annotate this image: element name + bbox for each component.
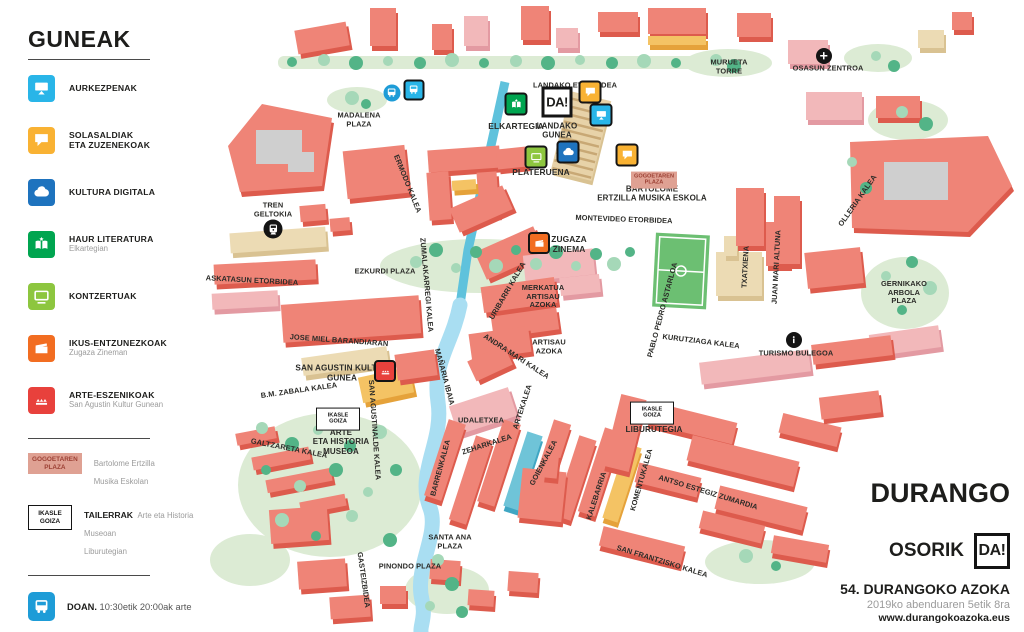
map-label: ARTISAU AZOKA <box>532 338 566 355</box>
legend-item-label: AURKEZPENAK <box>69 83 137 93</box>
ikus-entzunezkoak-icon <box>528 232 550 254</box>
legend-item-solasaldiak: SOLASALDIAK ETA ZUZENEKOAK <box>28 126 198 154</box>
map-label: UDALETXEA <box>458 417 504 426</box>
legend-item-arte-eszenikoak: ARTE-ESZENIKOAK San Agustin Kultur Gunea… <box>28 386 198 414</box>
legend-item-kontzertuak: KONTZERTUAK <box>28 282 198 310</box>
legend-items: AURKEZPENAK SOLASALDIAK ETA ZUZENEKOAK K… <box>28 74 198 414</box>
legend: GUNEAK AURKEZPENAK SOLASALDIAK ETA ZUZEN… <box>28 26 198 632</box>
legend-title: GUNEAK <box>28 26 198 53</box>
arte-eszenikoak-icon <box>374 360 396 382</box>
legend-item-label: HAUR LITERATURA <box>69 234 153 244</box>
da-logo-brand: DA! <box>974 533 1010 569</box>
free-label: DOAN. <box>67 602 97 612</box>
aurkezpenak-icon <box>590 104 613 127</box>
map-label: GERNIKAKO ARBOLA PLAZA <box>881 280 927 306</box>
badge: IKASLE GOIZA <box>28 505 72 530</box>
osorik-label: OSORIK <box>889 540 964 562</box>
solasaldiak-1-icon <box>579 81 602 104</box>
divider <box>28 59 150 60</box>
free-entry-row: DOAN. 10:30etik 20:00ak arte <box>28 592 198 621</box>
legend-badge-gogoetaren-plaza: GOGOETAREN PLAZA Bartolome Ertzilla Musi… <box>28 453 198 489</box>
tren-geltokia-icon <box>264 220 283 239</box>
ikus-entzunezkoak-icon <box>28 335 55 362</box>
doan-bus-icon <box>404 80 425 101</box>
map-label: MADALENA PLAZA <box>337 111 380 128</box>
event-url: www.durangokoazoka.eus <box>840 612 1010 624</box>
legend-badge-ikasle-goiza: IKASLE GOIZA TAILERRAK Arte eta Historia… <box>28 505 198 559</box>
arte-eszenikoak-icon <box>28 387 55 414</box>
haur-literatura-icon <box>28 231 55 258</box>
solasaldiak-2-icon <box>616 144 639 167</box>
map-label: LANDAKO GUNEA <box>537 122 578 141</box>
map-label: ARTE ETA HISTORIA MUSEOA <box>313 428 370 456</box>
map-label: EZKURDI PLAZA <box>355 268 416 277</box>
map-badge-ikasle-goiza-liburutegia: IKASLE GOIZA <box>630 402 674 425</box>
kontzertuak-icon <box>525 146 548 169</box>
legend-item-label: IKUS-ENTZUNEZKOAK <box>69 338 167 348</box>
legend-item-sublabel: San Agustin Kultur Gunean <box>69 400 163 409</box>
bus-stop-icon <box>384 85 401 102</box>
legend-item-haur-literatura: HAUR LITERATURA Elkartegian <box>28 230 198 258</box>
legend-badges: GOGOETAREN PLAZA Bartolome Ertzilla Musi… <box>28 453 198 559</box>
legend-item-label: ARTE-ESZENIKOAK <box>69 390 163 400</box>
map-label: ELKARTEGIA <box>488 122 543 132</box>
legend-item-label: SOLASALDIAK ETA ZUZENEKOAK <box>69 130 150 151</box>
da-logo: DA! <box>542 87 573 118</box>
haur-literatura-icon <box>505 93 528 116</box>
divider <box>28 575 150 576</box>
map-label: TURISMO BULEGOA <box>759 350 834 359</box>
map-label: PLATERUENA <box>512 168 570 178</box>
bus-icon <box>28 592 55 621</box>
map-label: MURUETA TORRE <box>710 58 747 75</box>
map-label: LIBURUTEGIA <box>625 425 682 435</box>
turismo-bulegoa-icon <box>786 332 802 348</box>
map-label: OSASUN ZENTROA <box>793 65 864 74</box>
aurkezpenak-icon <box>28 75 55 102</box>
legend-item-sublabel: Elkartegian <box>69 244 153 253</box>
map-badge-gogoetaren-plaza: GOGOETAREN PLAZA <box>631 172 677 189</box>
city-title: DURANGO <box>840 478 1010 509</box>
event-title: 54. DURANGOKO AZOKA <box>840 581 1010 597</box>
map-badge-ikasle-goiza-museoa: IKASLE GOIZA <box>316 408 360 431</box>
legend-item-aurkezpenak: AURKEZPENAK <box>28 74 198 102</box>
event-date: 2019ko abenduaren 5etik 8ra <box>840 599 1010 611</box>
osasun-zentroa-icon <box>816 48 832 64</box>
badge-desc: Bartolome Ertzilla Musika Eskolan <box>94 459 155 486</box>
legend-item-kultura-digitala: KULTURA DIGITALA <box>28 178 198 206</box>
free-hours: 10:30etik 20:00ak arte <box>97 602 192 612</box>
legend-item-label: KULTURA DIGITALA <box>69 187 155 197</box>
poster: LANDAKO ETORBIDEAMADALENA PLAZAMURUETA T… <box>0 0 1024 632</box>
map-label: SANTA ANA PLAZA <box>428 533 471 550</box>
map-label: PINONDO PLAZA <box>379 563 441 572</box>
legend-item-ikus-entzunezkoak: IKUS-ENTZUNEZKOAK Zugaza Zineman <box>28 334 198 362</box>
solasaldiak-icon <box>28 127 55 154</box>
badge: GOGOETAREN PLAZA <box>28 453 82 474</box>
map-label: MERKATUA ARTISAU AZOKA <box>522 284 565 310</box>
map-label: TREN GELTOKIA <box>254 201 292 218</box>
branding: DURANGO OSORIK DA! 54. DURANGOKO AZOKA 2… <box>840 478 1010 624</box>
kontzertuak-icon <box>28 283 55 310</box>
map-label: ZUGAZA ZINEMA <box>551 235 587 255</box>
badge-title: TAILERRAK <box>84 510 133 520</box>
legend-item-sublabel: Zugaza Zineman <box>69 348 167 357</box>
divider <box>28 438 150 439</box>
legend-item-label: KONTZERTUAK <box>69 291 137 301</box>
kultura-digitala-icon <box>557 141 580 164</box>
kultura-digitala-icon <box>28 179 55 206</box>
